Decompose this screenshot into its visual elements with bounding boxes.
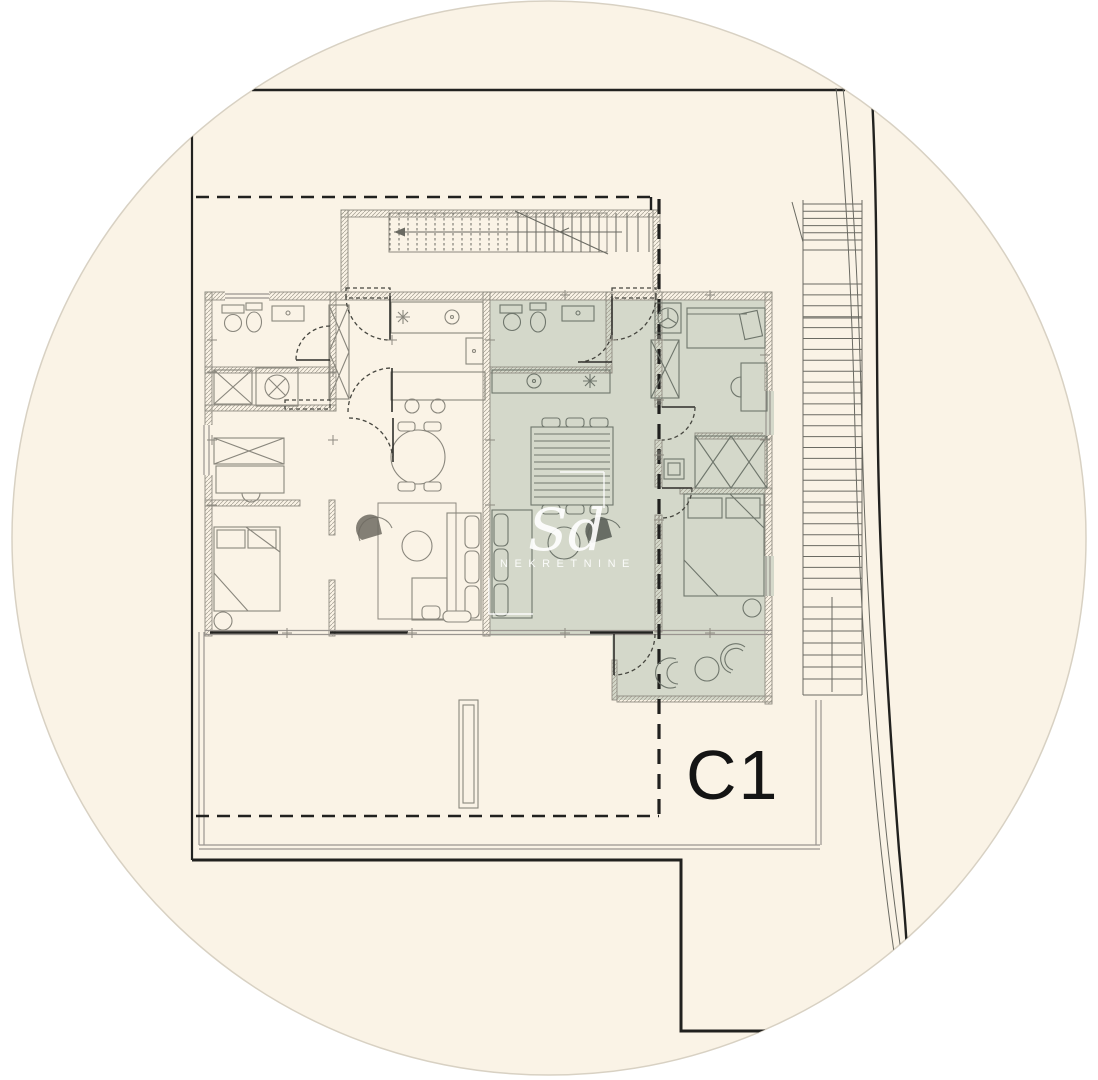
unit-label: C1 xyxy=(686,736,779,814)
floor-plan-svg: Sd NEKRETNINE C1 xyxy=(0,0,1098,1080)
floor-plan-page: Sd NEKRETNINE C1 xyxy=(0,0,1098,1080)
watermark-script-text: Sd xyxy=(528,496,605,564)
pillar xyxy=(459,700,478,808)
watermark-caps-text: NEKRETNINE xyxy=(500,558,636,570)
